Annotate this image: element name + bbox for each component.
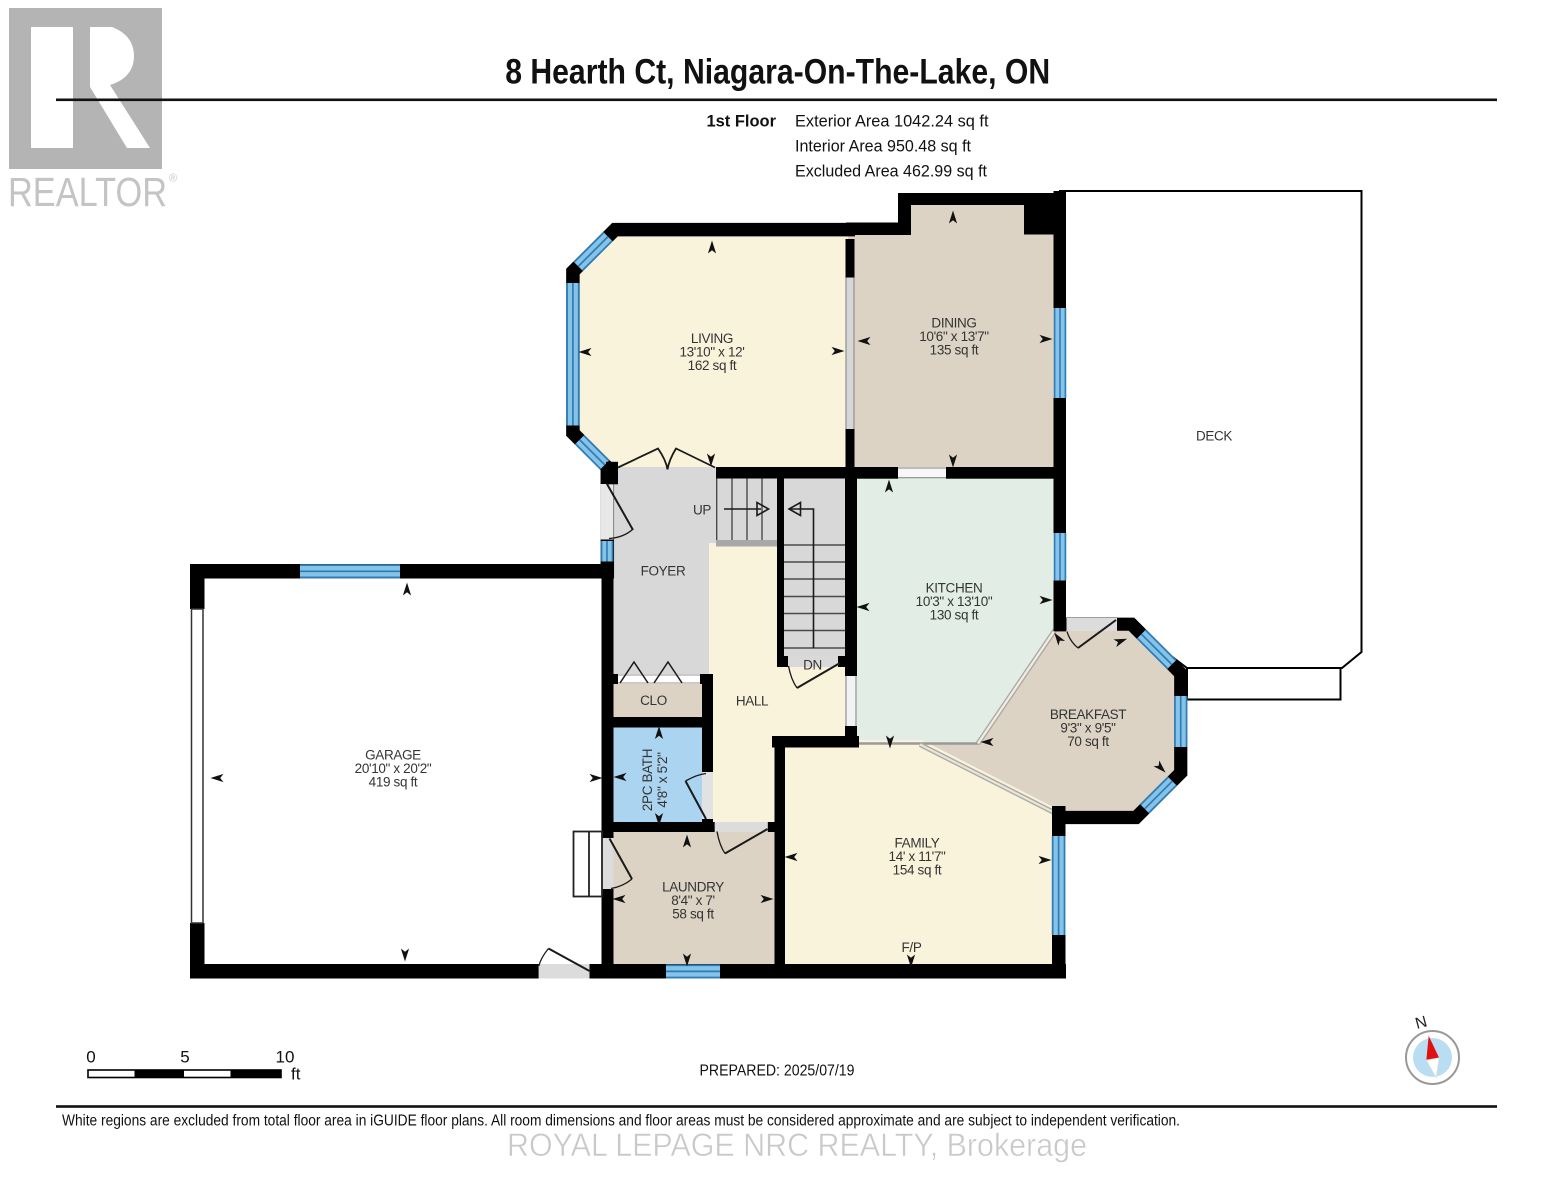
svg-text:2PC BATH: 2PC BATH (640, 749, 655, 811)
svg-text:1st Floor: 1st Floor (707, 111, 777, 130)
svg-text:58 sq ft: 58 sq ft (672, 907, 714, 922)
svg-text:162 sq ft: 162 sq ft (688, 358, 737, 373)
svg-text:0: 0 (86, 1048, 95, 1067)
svg-text:REALTOR: REALTOR (8, 169, 167, 215)
svg-text:4'8" x 5'2": 4'8" x 5'2" (655, 752, 670, 808)
svg-text:5: 5 (180, 1048, 189, 1067)
svg-text:UP: UP (693, 503, 711, 518)
svg-text:ft: ft (291, 1065, 301, 1084)
svg-text:130 sq ft: 130 sq ft (930, 607, 979, 622)
svg-text:DECK: DECK (1196, 429, 1232, 444)
svg-text:F/P: F/P (902, 940, 922, 955)
svg-text:154 sq ft: 154 sq ft (893, 862, 942, 877)
svg-text:CLO: CLO (640, 693, 667, 708)
svg-text:135 sq ft: 135 sq ft (930, 343, 979, 358)
svg-text:Interior Area 950.48 sq ft: Interior Area 950.48 sq ft (795, 136, 971, 155)
svg-text:®: ® (169, 173, 177, 185)
svg-text:8 Hearth Ct, Niagara-On-The-La: 8 Hearth Ct, Niagara-On-The-Lake, ON (505, 53, 1050, 92)
svg-text:Excluded Area 462.99 sq ft: Excluded Area 462.99 sq ft (795, 161, 987, 180)
svg-text:ROYAL LEPAGE NRC REALTY, Broke: ROYAL LEPAGE NRC REALTY, Brokerage (507, 1127, 1087, 1163)
svg-text:70 sq ft: 70 sq ft (1067, 734, 1109, 749)
svg-text:FOYER: FOYER (641, 564, 686, 579)
svg-text:DN: DN (803, 658, 822, 673)
svg-text:Exterior Area 1042.24 sq ft: Exterior Area 1042.24 sq ft (795, 111, 989, 130)
svg-text:419 sq ft: 419 sq ft (369, 775, 418, 790)
svg-text:HALL: HALL (736, 694, 769, 709)
svg-text:PREPARED: 2025/07/19: PREPARED: 2025/07/19 (700, 1063, 855, 1080)
